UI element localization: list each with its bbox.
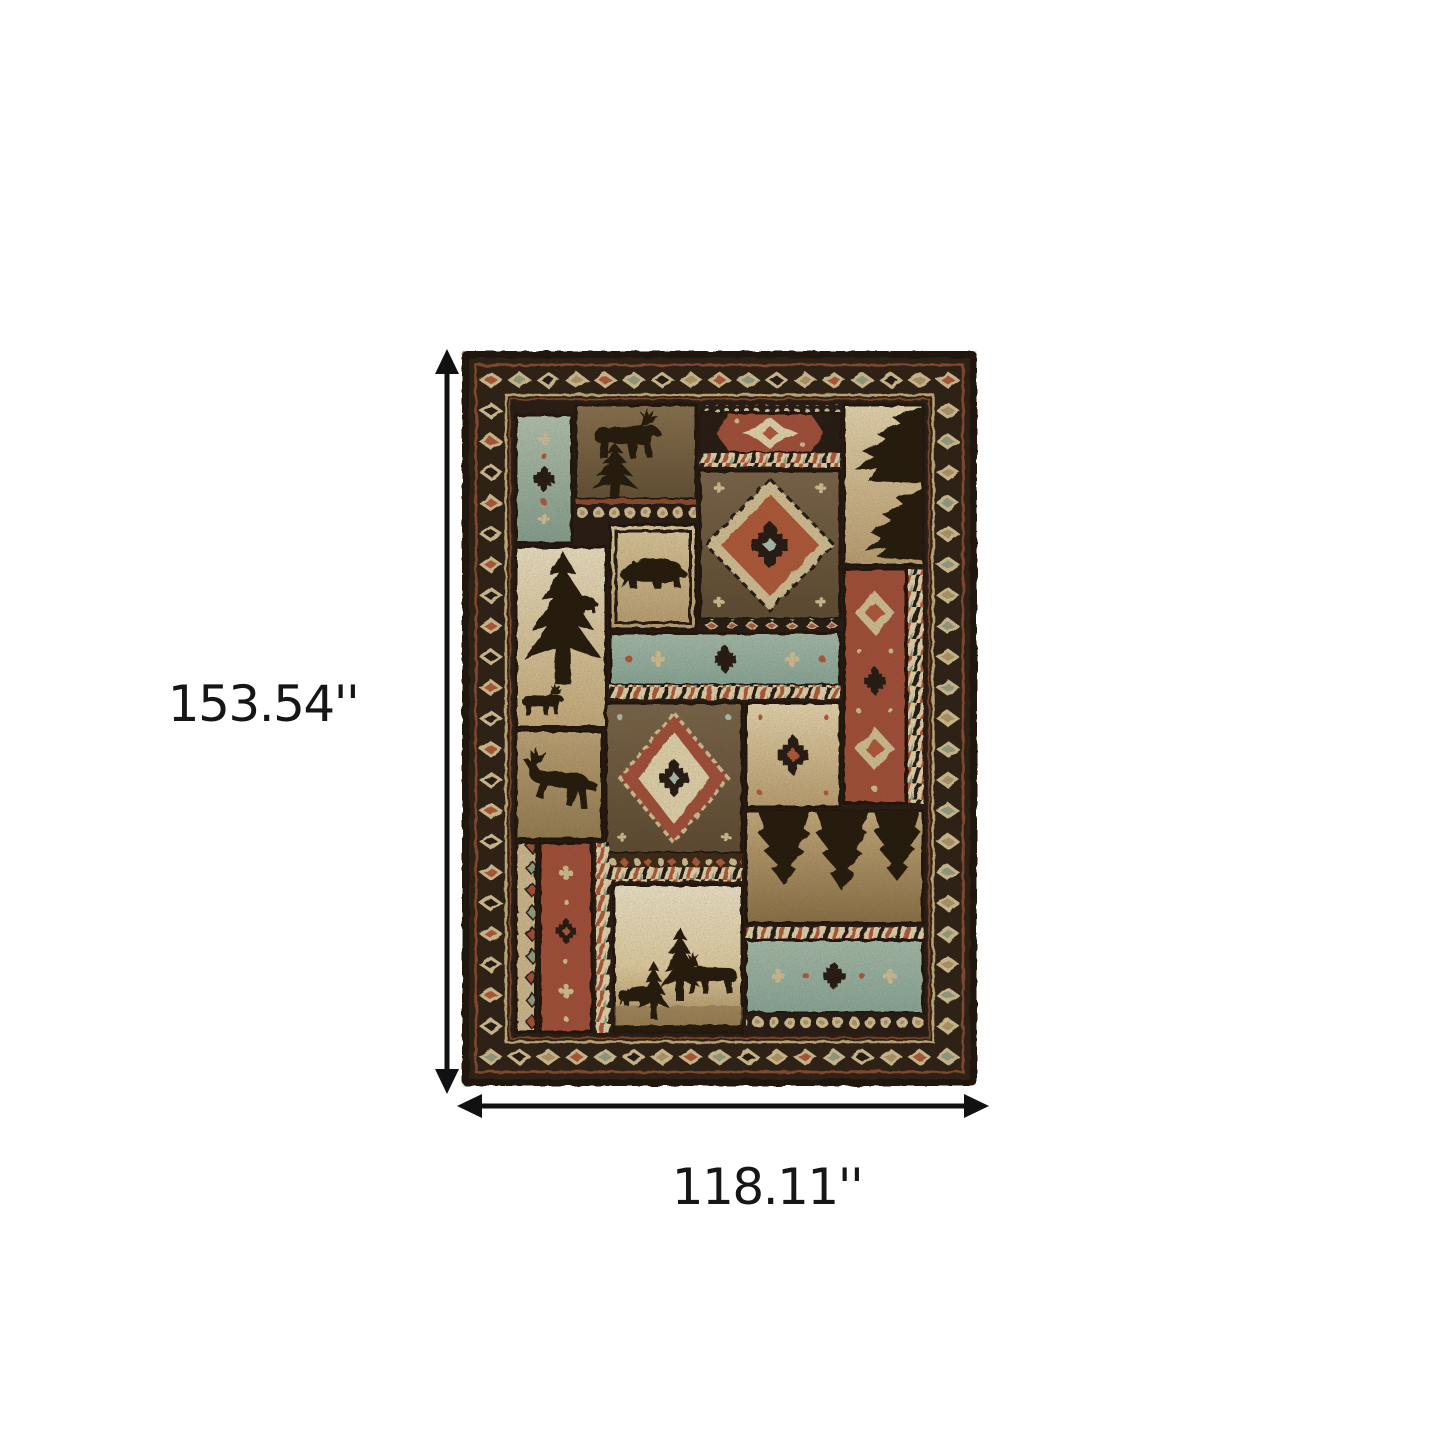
fabric-texture <box>462 351 977 1086</box>
width-dimension-label: 118.11'' <box>672 1158 862 1216</box>
rug-image <box>462 351 977 1086</box>
height-dimension-arrow <box>435 349 459 1094</box>
figure: 153.54'' 118.11'' <box>0 0 1445 1445</box>
height-dimension-label: 153.54'' <box>168 675 358 733</box>
width-dimension-arrow <box>457 1094 989 1118</box>
scene-svg: 153.54'' 118.11'' <box>0 0 1445 1445</box>
